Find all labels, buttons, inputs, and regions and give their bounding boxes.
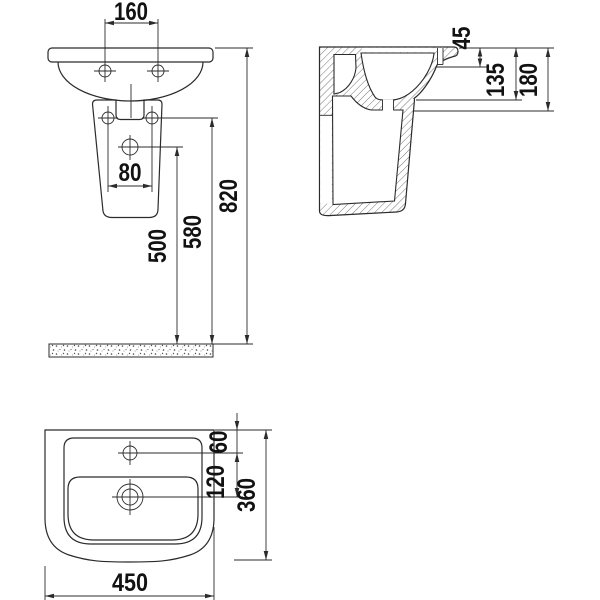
dim-label-500: 500 [144,229,172,263]
section-drain-opening [383,99,394,110]
side-section-view: 45 135 180 [320,26,555,215]
front-elevation-view: 160 80 500 580 820 [48,0,253,357]
dim-label-160: 160 [114,0,148,26]
dim-label-80: 80 [119,159,142,187]
dim-label-60: 60 [205,431,233,454]
drawing-svg: 160 80 500 580 820 [0,0,600,600]
dim-label-135: 135 [482,63,510,97]
section-pedestal-cavity [333,96,404,205]
basin-rim-front [48,48,213,62]
section-bowl-cavity [361,53,434,100]
dim-label-580: 580 [179,215,207,249]
floor-strip [49,344,213,357]
rim-opening [362,48,433,52]
section-tap-hole [438,48,444,65]
technical-drawing: 160 80 500 580 820 [0,0,600,600]
top-plan-view: 60 120 360 450 [45,413,272,600]
plan-bowl [68,477,198,540]
basin-bowl-front [58,62,203,101]
dim-label-360: 360 [233,478,261,512]
dim-label-45: 45 [448,26,476,49]
dim-label-120: 120 [202,465,230,499]
dim-label-180: 180 [515,63,543,97]
dim-label-450: 450 [112,569,148,597]
dim-label-820: 820 [215,179,243,213]
plan-rim [64,438,202,544]
